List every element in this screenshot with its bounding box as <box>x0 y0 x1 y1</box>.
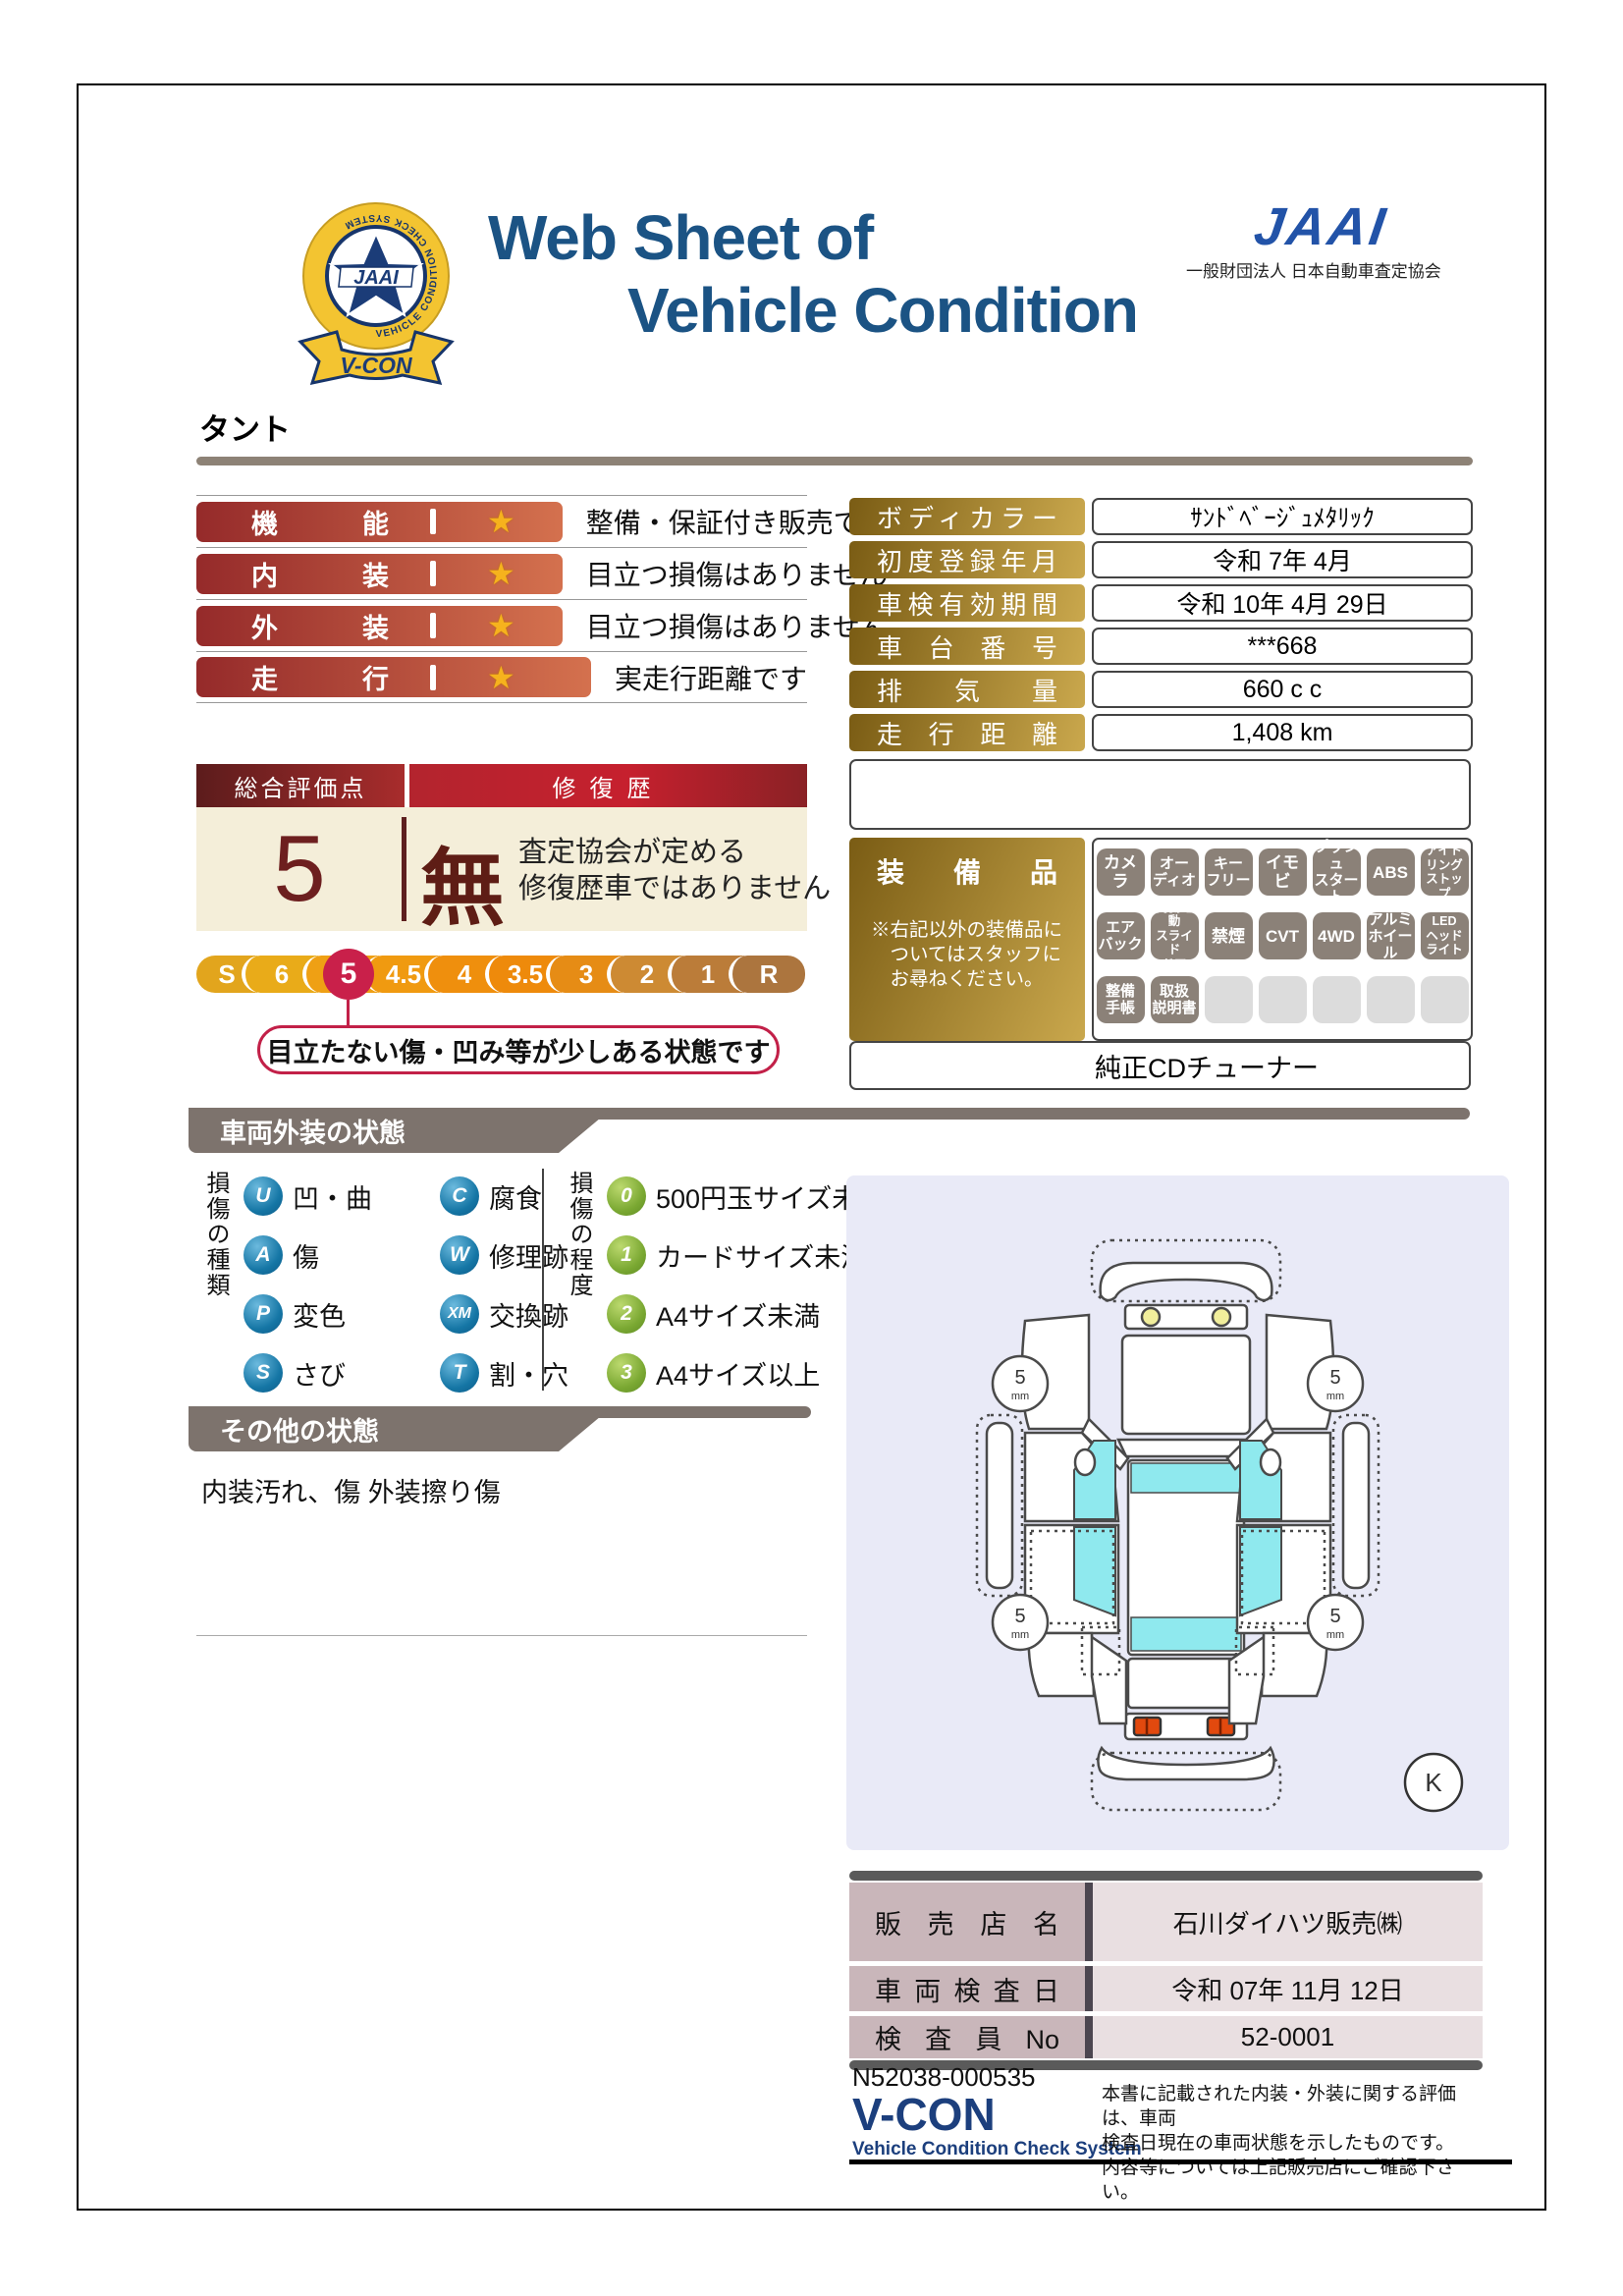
detail-label-text: 初度登録年月 <box>849 542 1085 578</box>
wheel-depth-value: 5 <box>1014 1367 1025 1389</box>
detail-row: 車検有効期間令和 10年 4月 29日 <box>849 584 1473 622</box>
damage-kind-label: 損傷の種類 <box>198 1171 233 1298</box>
detail-label-text: 車台番号 <box>849 629 1085 665</box>
repair-history-header: 修復歴 <box>409 764 807 807</box>
badge-line: ディオ <box>1153 872 1196 889</box>
other-section-tab: その他の状態 <box>189 1406 613 1451</box>
grade-pointer-line <box>347 1000 350 1027</box>
equipment-badge: エアバック <box>1097 912 1145 959</box>
rating-divider-mark <box>430 509 436 534</box>
detail-label: 車台番号 <box>849 628 1085 665</box>
badge-line: 4WD <box>1318 927 1355 946</box>
legend-divider <box>542 1169 544 1391</box>
damage-kind-text: 凹・曲 <box>293 1177 372 1216</box>
emblem-ribbon-text: V-CON <box>340 353 412 378</box>
car-damage-diagram: 5 mm 5 mm 5 mm 5 mm K <box>846 1175 1509 1850</box>
equipment-badge: キーフリー <box>1205 848 1253 896</box>
detail-row: 初度登録年月令和 7年 4月 <box>849 541 1473 578</box>
detail-value: 令和 7年 4月 <box>1092 541 1473 578</box>
detail-label-text: 排気量 <box>849 672 1085 708</box>
front-bumper <box>1101 1263 1272 1300</box>
grade-scale: S64.543.5321R <box>196 956 805 993</box>
damage-kind-text: 修理跡 <box>489 1236 568 1275</box>
detail-label: 走行距離 <box>849 714 1085 751</box>
selected-grade-badge: 5 <box>323 949 374 1000</box>
damage-kind-text: 腐食 <box>489 1177 542 1216</box>
dealer-row-label-text: 販売店名 <box>849 1903 1085 1941</box>
rating-bar: 走行★ <box>196 657 591 697</box>
damage-kind-code: W <box>440 1235 479 1275</box>
tailgate <box>1128 1659 1244 1708</box>
rating-row: 内装★目立つ損傷はありません <box>196 547 807 599</box>
badge-line: バック <box>1098 936 1142 953</box>
detail-label-text: ボディカラー <box>849 499 1085 535</box>
equipment-badge-empty <box>1367 976 1415 1023</box>
jaai-logo: JAAI <box>1251 196 1392 257</box>
equipment-badge-empty <box>1313 976 1361 1023</box>
disclaimer-line2: 検査日現在の車両状態を示したものです。 <box>1102 2131 1489 2156</box>
detail-value: 1,408 km <box>1092 714 1473 751</box>
damage-kind-code: P <box>243 1294 283 1334</box>
damage-kind-text: 傷 <box>293 1236 319 1275</box>
equipment-badge: カメラ <box>1097 848 1145 896</box>
damage-kind-code: T <box>440 1353 479 1393</box>
badge-line: スライド <box>1151 929 1199 957</box>
sill <box>987 1423 1012 1588</box>
badge-line: ライト <box>1426 943 1463 957</box>
wheel-depth-value: 5 <box>1329 1367 1340 1389</box>
details-empty-box <box>849 759 1471 830</box>
damage-kind-text: さび <box>293 1354 346 1393</box>
equipment-badge: オーディオ <box>1151 848 1199 896</box>
equipment-badge: 両側電動スライドドア <box>1151 912 1199 959</box>
headlight-left-icon <box>1142 1308 1160 1326</box>
damage-degree-code: 2 <box>607 1294 646 1334</box>
equipment-badge: イモビ <box>1259 848 1307 896</box>
damage-degree-text: カードサイズ未満 <box>656 1236 867 1275</box>
damage-kind-text: 変色 <box>293 1295 346 1334</box>
equipment-badge: アイドリングストップ <box>1421 848 1469 896</box>
damage-degree-text: A4サイズ以上 <box>656 1354 820 1393</box>
badge-line: キー <box>1214 855 1243 872</box>
equipment-note: ※右記以外の装備品に ついてはスタッフに お尋ねください。 <box>871 918 1063 992</box>
windshield <box>1122 1336 1250 1434</box>
badge-line: 取扱 <box>1160 983 1189 1000</box>
emblem-jaai-text: JAAI <box>353 267 399 289</box>
equipment-badge: ABS <box>1367 848 1415 896</box>
damage-kind-code: S <box>243 1353 283 1393</box>
damage-kind-code: U <box>243 1176 283 1216</box>
detail-value: 660 c c <box>1092 671 1473 708</box>
disclaimer-line1: 本書に記載された内装・外装に関する評価は、車両 <box>1102 2082 1489 2131</box>
repair-history-desc: 査定協会が定める 修復歴車ではありません <box>518 835 831 907</box>
rating-divider-mark <box>430 613 436 638</box>
detail-label-text: 走行距離 <box>849 715 1085 751</box>
equipment-badge: LEDヘッドライト <box>1421 912 1469 959</box>
rating-label: 外装 <box>251 607 389 645</box>
detail-row: ボディカラーｻﾝﾄﾞﾍﾞｰｼﾞｭﾒﾀﾘｯｸ <box>849 498 1473 535</box>
damage-degree-item: 3A4サイズ以上 <box>607 1343 885 1402</box>
dealer-row: 販売店名石川ダイハツ販売㈱ <box>849 1883 1483 1961</box>
badge-line: ホイール <box>1367 928 1415 961</box>
overall-header: 総合評価点 修復歴 <box>196 764 807 807</box>
other-condition-text: 内装汚れ、傷 外装擦り傷 <box>201 1471 501 1509</box>
overall-score-header: 総合評価点 <box>196 764 405 807</box>
rating-desc: 目立つ損傷はありません <box>586 606 888 645</box>
badge-line: イモビ <box>1259 853 1307 891</box>
equipment-badge: プッシュスタート <box>1313 848 1361 896</box>
star-icon: ★ <box>487 659 515 696</box>
rating-row: 外装★目立つ損傷はありません <box>196 599 807 651</box>
detail-row: 走行距離1,408 km <box>849 714 1473 751</box>
grade-callout: 目立たない傷・凹み等が少しある状態です <box>257 1025 780 1074</box>
rating-row: 走行★実走行距離です <box>196 651 807 703</box>
dealer-row-value: 令和 07年 11月 12日 <box>1093 1966 1483 2011</box>
damage-kind-code: C <box>440 1176 479 1216</box>
detail-row: 車台番号***668 <box>849 628 1473 665</box>
wheel-depth-unit: mm <box>1326 1629 1344 1641</box>
damage-degrees: 0500円玉サイズ未満1カードサイズ未満2A4サイズ未満3A4サイズ以上 <box>607 1167 885 1402</box>
dealer-row: 検査員No52-0001 <box>849 2016 1483 2058</box>
page-title-line1: Web Sheet of <box>488 201 1138 274</box>
damage-kind-text: 割・穴 <box>489 1354 568 1393</box>
badge-line: ヘッド <box>1426 929 1463 944</box>
vcon-emblem: VEHICLE CONDITION CHECK SYSTEM JAAI V-CO… <box>283 192 469 399</box>
star-icon: ★ <box>487 555 515 592</box>
dealer-row-divider <box>1085 1883 1093 1961</box>
dealer-row-label-text: 車両検査日 <box>849 1970 1085 2008</box>
wheel-depth-unit: mm <box>1011 1629 1029 1641</box>
damage-degree-item: 1カードサイズ未満 <box>607 1226 885 1285</box>
star-icon: ★ <box>487 503 515 540</box>
star-icon: ★ <box>487 607 515 644</box>
dealer-row: 車両検査日令和 07年 11月 12日 <box>849 1966 1483 2011</box>
rating-divider-mark <box>430 561 436 586</box>
rating-label: 機能 <box>251 503 389 541</box>
dealer-row-label: 検査員No <box>849 2016 1085 2058</box>
damage-kind-item: P変色 <box>243 1285 440 1343</box>
ratings: 機能★整備・保証付き販売です内装★目立つ損傷はありません外装★目立つ損傷はありま… <box>196 495 807 703</box>
detail-row: 排気量660 c c <box>849 671 1473 708</box>
damage-degree-item: 2A4サイズ未満 <box>607 1285 885 1343</box>
badge-line: オー <box>1160 855 1189 872</box>
badge-line: 説明書 <box>1152 1000 1196 1016</box>
rear-corner <box>1092 1637 1126 1723</box>
equipment-badge-empty <box>1259 976 1307 1023</box>
equipment-title: 装備品 <box>871 851 1063 891</box>
damage-degree-text: A4サイズ未満 <box>656 1295 820 1334</box>
detail-value: ***668 <box>1092 628 1473 665</box>
badge-line: フリー <box>1206 872 1250 889</box>
damage-kind-item: U凹・曲 <box>243 1167 440 1226</box>
badge-line: カメラ <box>1097 853 1145 891</box>
badge-line: LED <box>1433 914 1457 929</box>
roof-rear-glass <box>1131 1617 1241 1651</box>
footer-rule <box>849 2159 1512 2164</box>
page-title-line2: Vehicle Condition <box>627 274 1138 347</box>
equipment-badge-empty <box>1205 976 1253 1023</box>
dealer-row-label: 車両検査日 <box>849 1966 1085 2011</box>
rating-label: 走行 <box>251 658 389 696</box>
damage-degree-code: 3 <box>607 1353 646 1393</box>
detail-label: 車検有効期間 <box>849 584 1085 622</box>
door-mirror <box>1075 1449 1095 1475</box>
vcon-logo-subtitle: Vehicle Condition Check System <box>852 2139 1142 2160</box>
badge-line: 整備 <box>1106 983 1135 1000</box>
detail-value: ｻﾝﾄﾞﾍﾞｰｼﾞｭﾒﾀﾘｯｸ <box>1092 498 1473 535</box>
rating-desc: 整備・保証付き販売です <box>586 502 889 541</box>
equipment-badges: カメラオーディオキーフリーイモビプッシュスタートABSアイドリングストップエアバ… <box>1092 838 1473 1041</box>
equipment-badge-empty <box>1421 976 1469 1023</box>
wheel-depth-value: 5 <box>1014 1606 1025 1627</box>
rating-desc: 実走行距離です <box>615 658 807 697</box>
damage-kind-code: XM <box>440 1294 479 1334</box>
detail-label: 初度登録年月 <box>849 541 1085 578</box>
page-title: Web Sheet of Vehicle Condition <box>488 201 1138 347</box>
damage-kind-text: 交換跡 <box>489 1295 568 1334</box>
detail-value: 令和 10年 4月 29日 <box>1092 584 1473 622</box>
divider-bar <box>196 457 1473 465</box>
detail-label: ボディカラー <box>849 498 1085 535</box>
equipment-badge: CVT <box>1259 912 1307 959</box>
damage-degree-code: 0 <box>607 1176 646 1216</box>
damage-degree-label: 損傷の程度 <box>562 1171 596 1298</box>
rating-bar: 機能★ <box>196 502 563 542</box>
rear-door-glass <box>1074 1527 1115 1615</box>
equipment-badge: アルミホイール <box>1367 912 1415 959</box>
rating-divider-mark <box>430 665 436 690</box>
damage-degree-code: 1 <box>607 1235 646 1275</box>
badge-line: 両側電動 <box>1151 901 1199 929</box>
badge-line: アルミ <box>1369 911 1413 928</box>
badge-line: アイド <box>1427 844 1463 858</box>
badge-line: ABS <box>1373 863 1408 882</box>
overall-body: 5 無 査定協会が定める 修復歴車ではありません <box>196 807 807 931</box>
badge-line: スタート <box>1313 872 1361 905</box>
roof-front-glass <box>1131 1463 1241 1493</box>
repair-desc-line2: 修復歴車ではありません <box>518 871 831 907</box>
damage-kind-code: A <box>243 1235 283 1275</box>
badge-line: ドア <box>1162 957 1186 972</box>
corner-mark: K <box>1425 1768 1442 1797</box>
badge-line: 手帳 <box>1106 1000 1135 1016</box>
dealer-row-label-text: 検査員No <box>849 2018 1085 2056</box>
left-column-rule <box>196 1635 807 1636</box>
dealer-row-value: 52-0001 <box>1093 2016 1483 2058</box>
damage-legend: 損傷の種類 U凹・曲C腐食A傷W修理跡P変色XM交換跡SさびT割・穴 損傷の程度… <box>196 1167 807 1393</box>
detail-label-text: 車検有効期間 <box>849 585 1085 622</box>
disclaimer: 本書に記載された内装・外装に関する評価は、車両 検査日現在の車両状態を示したもの… <box>1102 2082 1489 2205</box>
rating-desc: 目立つ損傷はありません <box>586 554 888 593</box>
wheel-depth-unit: mm <box>1011 1391 1029 1402</box>
headlight-right-icon <box>1213 1308 1230 1326</box>
badge-line: リング <box>1426 858 1463 873</box>
rating-bar: 内装★ <box>196 554 563 594</box>
equipment-header-box: 装備品 ※右記以外の装備品に ついてはスタッフに お尋ねください。 <box>849 838 1085 1041</box>
exterior-section-tab: 車両外装の状態 <box>189 1108 613 1153</box>
vehicle-condition-sheet: VEHICLE CONDITION CHECK SYSTEM JAAI V-CO… <box>0 0 1623 2296</box>
repair-history-value: 無 <box>420 819 505 942</box>
equipment-extra: 純正CDチューナー <box>849 1041 1471 1090</box>
badge-line: プッシュ <box>1313 839 1361 872</box>
equipment-badge: 4WD <box>1313 912 1361 959</box>
equipment-badge: 禁煙 <box>1205 912 1253 959</box>
rating-label: 内装 <box>251 555 389 593</box>
damage-kind-item: Sさび <box>243 1343 440 1402</box>
dealer-row-value: 石川ダイハツ販売㈱ <box>1093 1883 1483 1961</box>
overall-score: 5 <box>196 807 403 931</box>
badge-line: ストップ <box>1421 872 1469 901</box>
equipment-badge: 取扱説明書 <box>1151 976 1199 1023</box>
rating-row: 機能★整備・保証付き販売です <box>196 495 807 547</box>
damage-degree-item: 0500円玉サイズ未満 <box>607 1167 885 1226</box>
dealer-table-top-bar <box>849 1871 1483 1881</box>
badge-line: CVT <box>1266 927 1299 946</box>
vehicle-details-table: ボディカラーｻﾝﾄﾞﾍﾞｰｼﾞｭﾒﾀﾘｯｸ初度登録年月令和 7年 4月車検有効期… <box>849 498 1473 757</box>
dealer-row-label: 販売店名 <box>849 1883 1085 1961</box>
equipment-badge: 整備手帳 <box>1097 976 1145 1023</box>
repair-desc-line1: 査定協会が定める <box>518 835 831 871</box>
rating-bar: 外装★ <box>196 606 563 646</box>
dealer-row-divider <box>1085 1966 1093 2011</box>
wheel-depth-unit: mm <box>1326 1391 1344 1402</box>
grade-pill: R <box>729 956 805 993</box>
wheel-depth-value: 5 <box>1329 1606 1340 1627</box>
damage-kind-item: A傷 <box>243 1226 440 1285</box>
badge-line: 禁煙 <box>1212 927 1245 946</box>
dealer-row-divider <box>1085 2016 1093 2058</box>
overall-divider <box>402 817 406 921</box>
badge-line: エア <box>1106 919 1135 936</box>
dealer-rows: 販売店名石川ダイハツ販売㈱車両検査日令和 07年 11月 12日検査員No52-… <box>849 1883 1483 2058</box>
vehicle-name: タント <box>199 405 291 449</box>
jaai-subtitle: 一般財団法人 日本自動車査定協会 <box>1186 257 1441 282</box>
dealer-table: 販売店名石川ダイハツ販売㈱車両検査日令和 07年 11月 12日検査員No52-… <box>849 1871 1483 2070</box>
detail-label: 排気量 <box>849 671 1085 708</box>
vcon-logo: V-CON <box>852 2088 996 2141</box>
